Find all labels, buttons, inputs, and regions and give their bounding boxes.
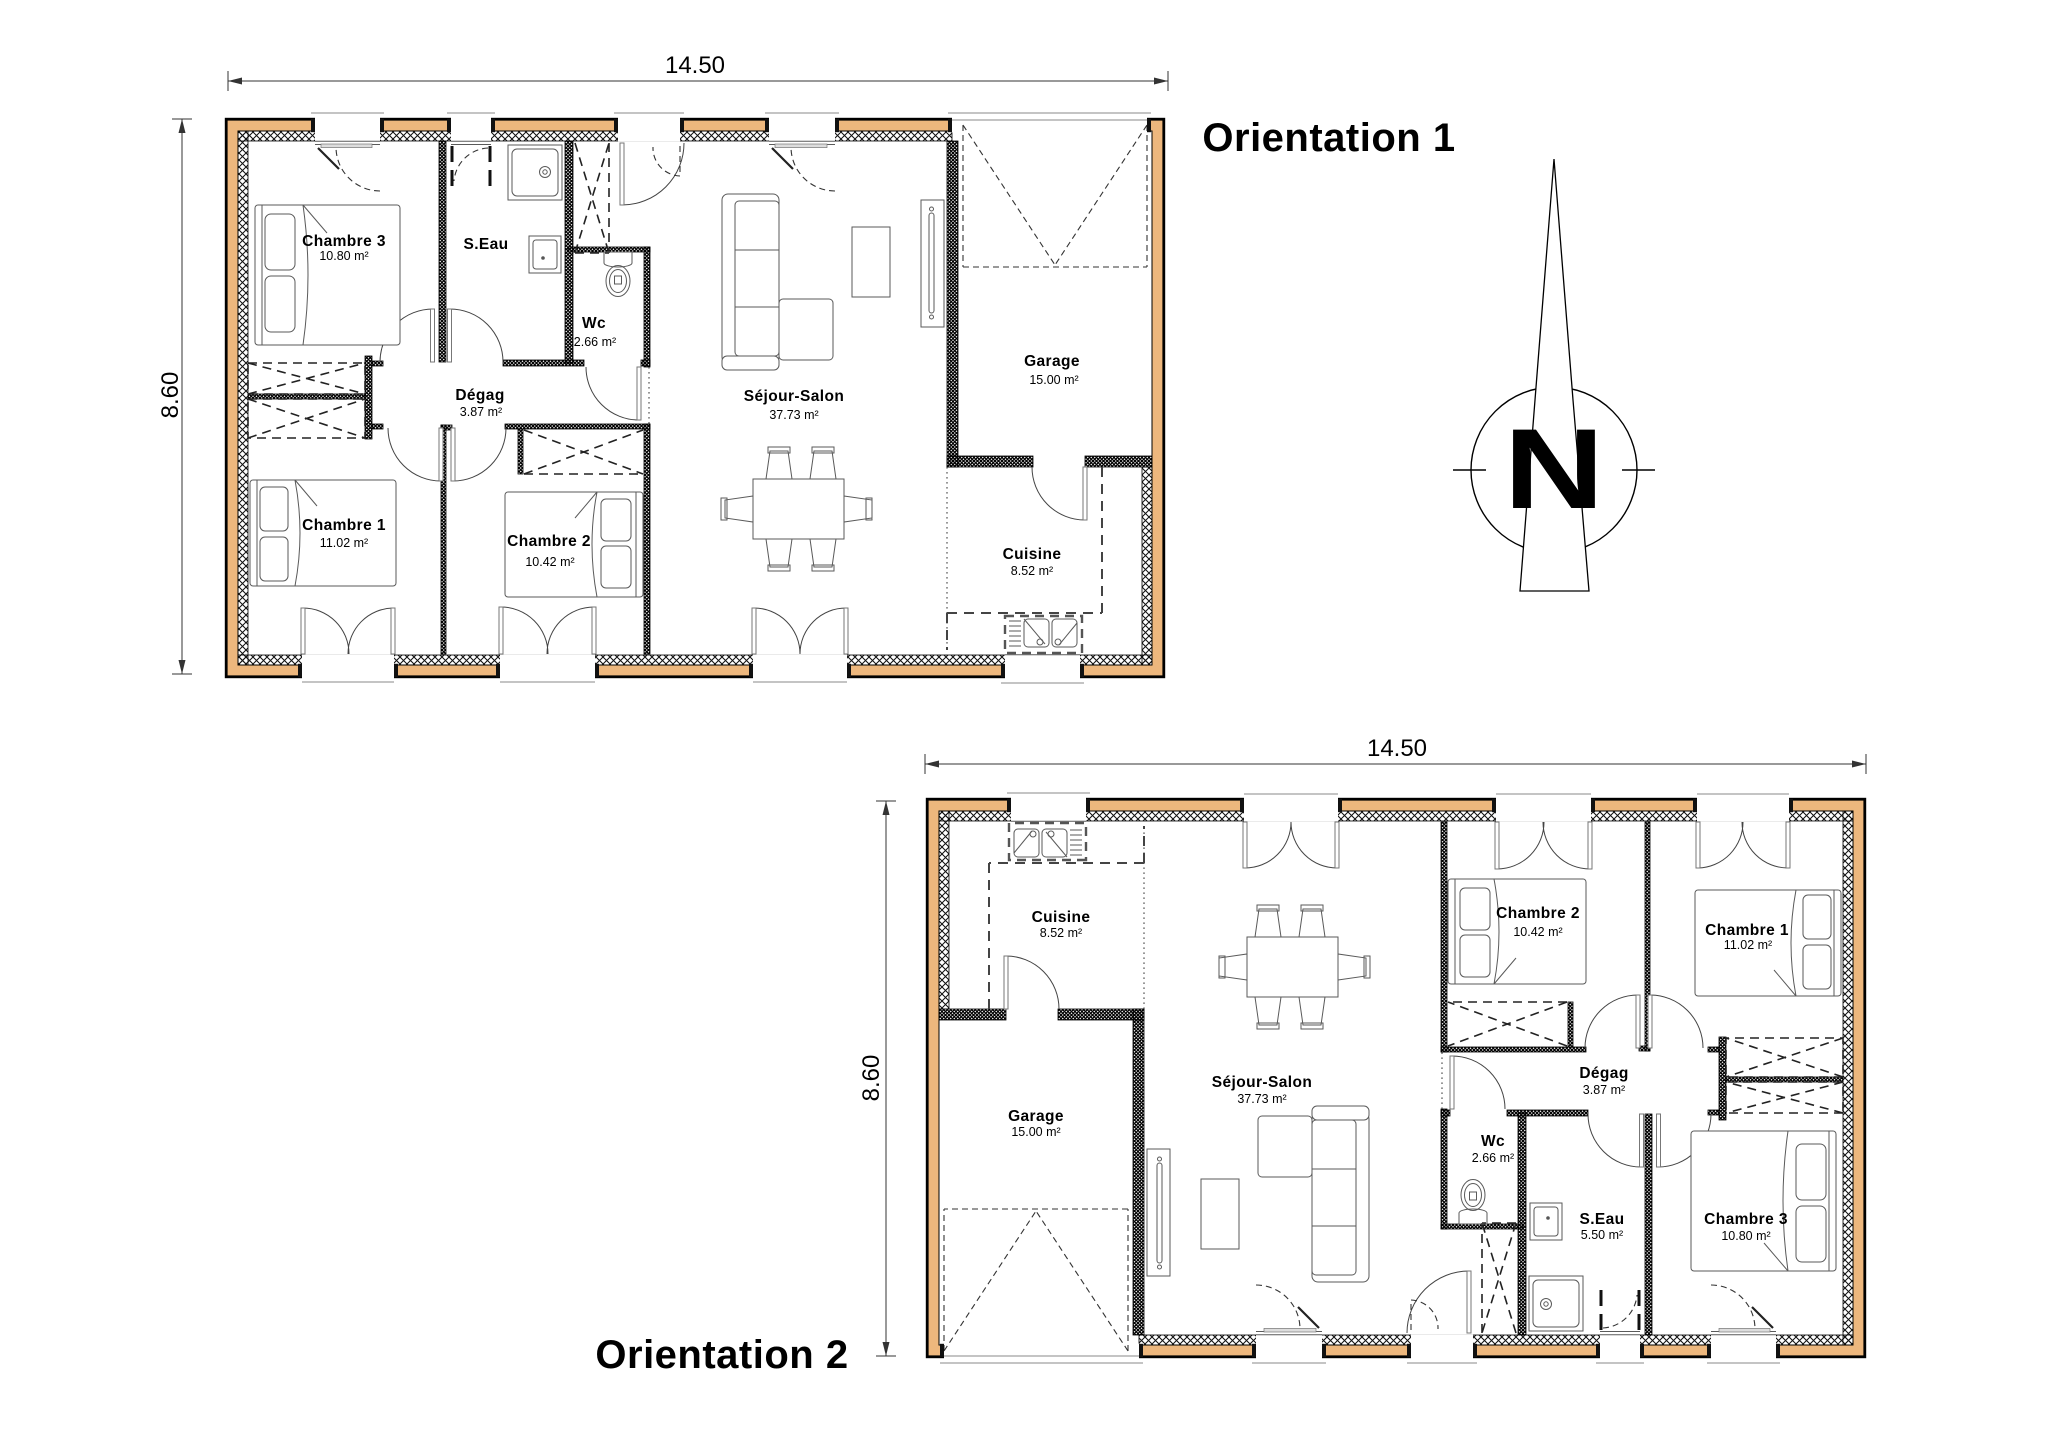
svg-text:8.52 m²: 8.52 m² <box>1011 564 1053 578</box>
svg-text:S.Eau: S.Eau <box>463 236 508 253</box>
svg-text:10.42 m²: 10.42 m² <box>525 555 574 569</box>
svg-text:37.73 m²: 37.73 m² <box>1237 1092 1286 1106</box>
svg-text:N: N <box>1504 405 1604 532</box>
svg-text:15.00 m²: 15.00 m² <box>1029 373 1078 387</box>
svg-text:37.73 m²: 37.73 m² <box>769 408 818 422</box>
svg-text:Garage: Garage <box>1024 353 1080 370</box>
svg-text:Orientation 2: Orientation 2 <box>595 1333 848 1377</box>
svg-text:Séjour-Salon: Séjour-Salon <box>1212 1074 1312 1091</box>
svg-text:Garage: Garage <box>1008 1108 1064 1125</box>
svg-text:Chambre 3: Chambre 3 <box>302 233 386 250</box>
svg-text:Wc: Wc <box>582 315 606 332</box>
svg-text:Chambre 2: Chambre 2 <box>507 533 591 550</box>
svg-text:Dégag: Dégag <box>1579 1065 1628 1082</box>
svg-text:Cuisine: Cuisine <box>1032 909 1091 926</box>
svg-text:Chambre 2: Chambre 2 <box>1496 905 1580 922</box>
svg-text:15.00 m²: 15.00 m² <box>1011 1125 1060 1139</box>
svg-text:3.87 m²: 3.87 m² <box>460 405 502 419</box>
svg-text:10.80 m²: 10.80 m² <box>319 249 368 263</box>
svg-text:Chambre 1: Chambre 1 <box>302 517 386 534</box>
svg-text:11.02 m²: 11.02 m² <box>320 536 368 550</box>
svg-text:Cuisine: Cuisine <box>1003 546 1062 563</box>
svg-text:Orientation 1: Orientation 1 <box>1202 116 1455 160</box>
svg-text:3.87 m²: 3.87 m² <box>1583 1083 1625 1097</box>
svg-text:10.80 m²: 10.80 m² <box>1721 1229 1770 1243</box>
svg-text:14.50: 14.50 <box>665 52 725 79</box>
svg-text:Wc: Wc <box>1481 1133 1505 1150</box>
svg-text:Séjour-Salon: Séjour-Salon <box>744 388 844 405</box>
svg-text:Dégag: Dégag <box>455 387 504 404</box>
svg-text:2.66 m²: 2.66 m² <box>1472 1151 1514 1165</box>
svg-text:Chambre 3: Chambre 3 <box>1704 1211 1788 1228</box>
svg-text:11.02 m²: 11.02 m² <box>1724 938 1772 952</box>
svg-text:8.60: 8.60 <box>157 372 184 419</box>
svg-text:S.Eau: S.Eau <box>1579 1211 1624 1228</box>
svg-text:5.50 m²: 5.50 m² <box>1581 1228 1623 1242</box>
svg-text:8.52 m²: 8.52 m² <box>1040 926 1082 940</box>
svg-text:10.42 m²: 10.42 m² <box>1513 925 1562 939</box>
svg-text:2.66 m²: 2.66 m² <box>574 335 616 349</box>
svg-text:14.50: 14.50 <box>1367 735 1427 762</box>
svg-text:Chambre 1: Chambre 1 <box>1705 922 1789 939</box>
svg-text:8.60: 8.60 <box>858 1055 885 1102</box>
